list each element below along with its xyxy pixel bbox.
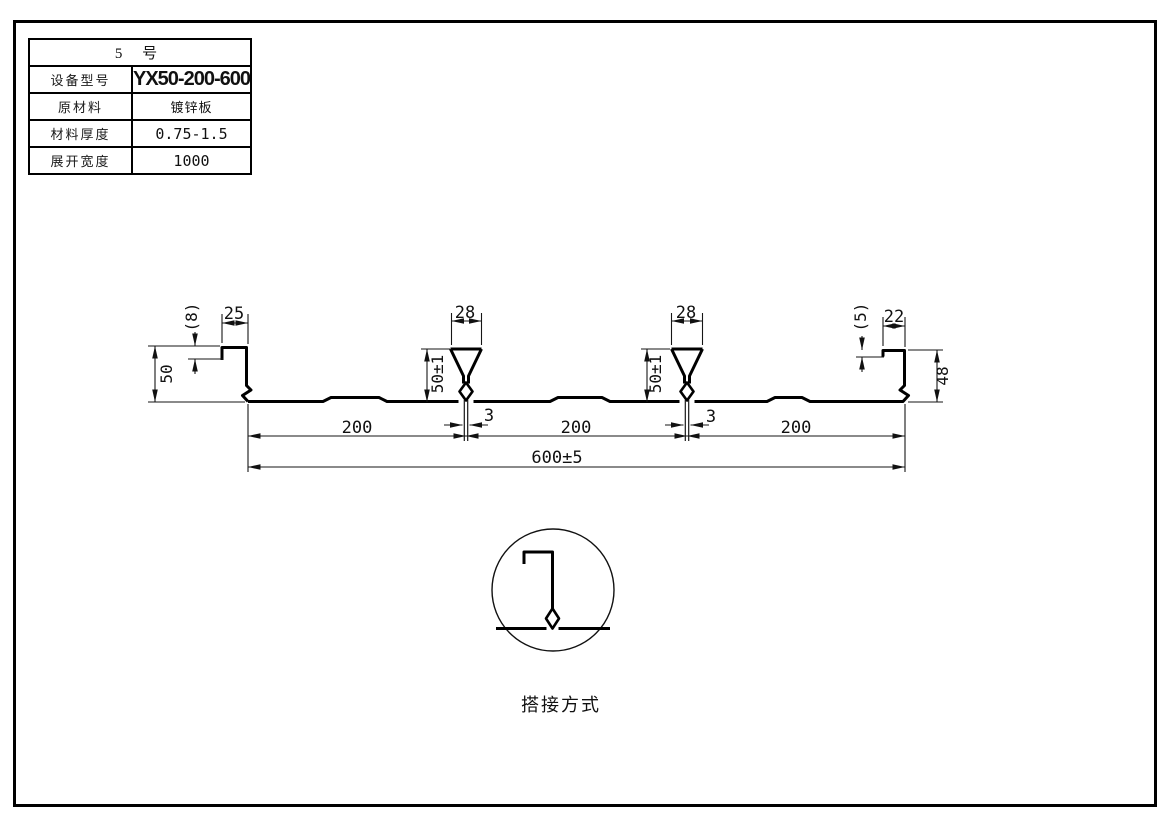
profile-web-segment-3-and-right-leg — [695, 351, 909, 402]
profile-web-segment-2 — [474, 398, 680, 402]
dim-slot2: 3 — [706, 407, 716, 427]
dim-lefthook: (8) — [182, 303, 201, 332]
dim-rib1-top: 28 — [455, 303, 475, 323]
dim-leftleg-height: 50 — [157, 364, 176, 383]
rib1-lock-diamond — [460, 383, 473, 401]
dim-rib1-height: 50±1 — [428, 355, 447, 394]
dim-overall: 600±5 — [531, 448, 582, 468]
dim-rib2-top: 28 — [676, 303, 696, 323]
profile-left-leg — [222, 348, 251, 402]
dim-rib2-height: 50±1 — [646, 355, 665, 394]
lap-detail-lock-diamond — [546, 609, 559, 629]
dim-righthook: (5) — [851, 303, 870, 332]
rib2-right-side — [690, 349, 703, 384]
profile-drawing: 200 200 200 600±5 3 3 28 28 25 22 (8) (5… — [0, 0, 1169, 827]
dim-span-mid: 200 — [561, 418, 592, 438]
dim-leftlip: 25 — [224, 304, 244, 324]
rib2-left-side — [672, 349, 685, 384]
dim-rightleg-height: 48 — [933, 366, 952, 385]
lap-detail-label: 搭接方式 — [521, 695, 601, 715]
dim-slot1: 3 — [484, 406, 494, 426]
rib1-right-side — [469, 349, 482, 384]
rib2-lock-diamond — [681, 383, 694, 401]
dim-span-left: 200 — [342, 418, 373, 438]
lap-detail-seam-leg — [524, 552, 553, 610]
rib1-left-side — [451, 349, 464, 384]
dim-rightlip: 22 — [884, 307, 904, 327]
dim-span-right: 200 — [781, 418, 812, 438]
